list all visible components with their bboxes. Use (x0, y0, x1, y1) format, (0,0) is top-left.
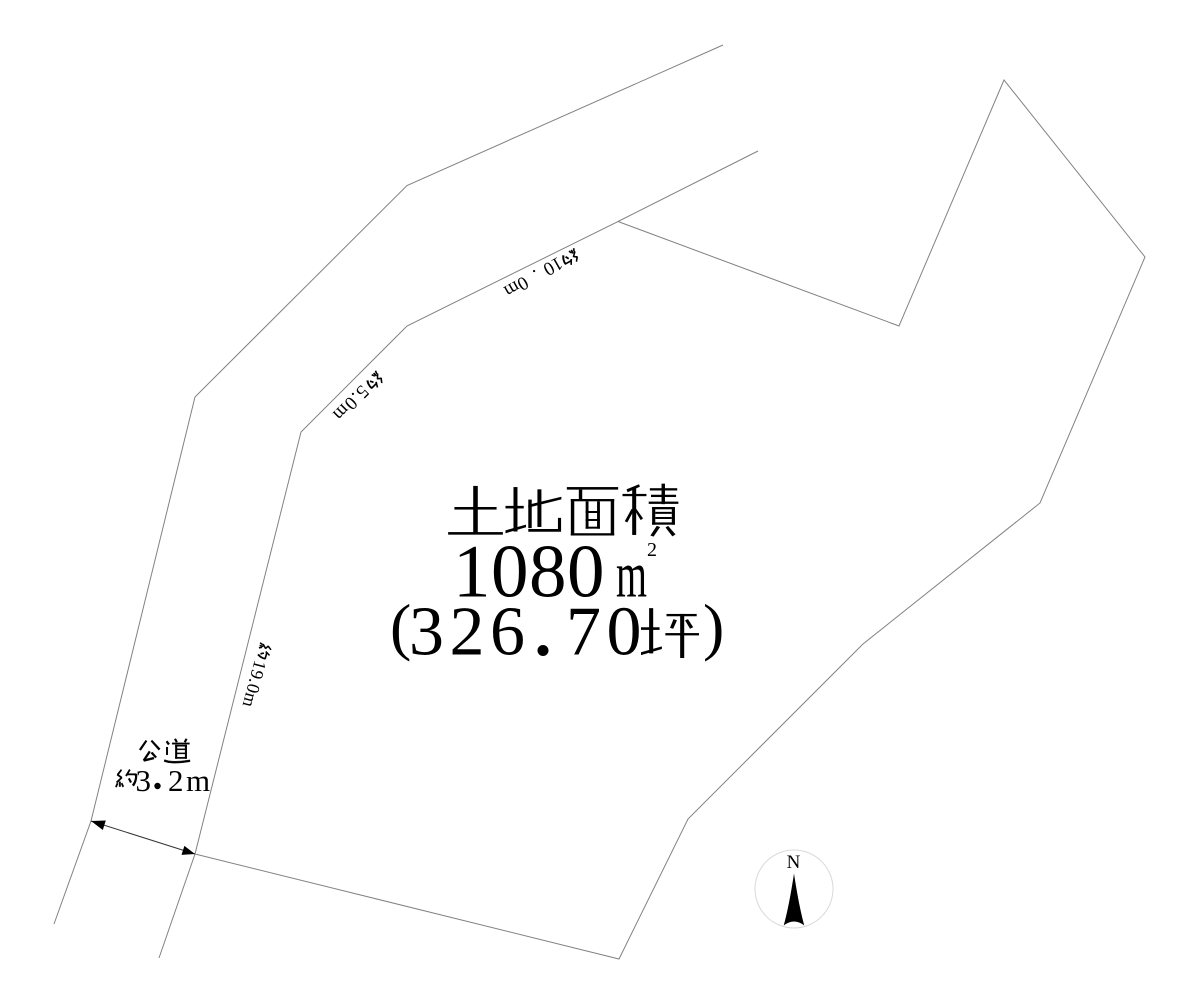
svg-text:m: m (186, 763, 210, 798)
svg-text:3: 3 (136, 763, 152, 798)
svg-text:): ) (703, 591, 724, 662)
svg-text:.: . (529, 265, 543, 286)
svg-text:5.0m: 5.0m (328, 381, 373, 426)
svg-text:2: 2 (647, 539, 657, 561)
svg-text:0m: 0m (500, 271, 532, 301)
svg-text:10: 10 (539, 252, 566, 280)
svg-text:326: 326 (409, 594, 531, 671)
svg-text:N: N (787, 852, 801, 873)
svg-text:19.0m: 19.0m (239, 658, 271, 710)
svg-text:2: 2 (168, 763, 184, 798)
svg-text:70: 70 (566, 594, 647, 671)
